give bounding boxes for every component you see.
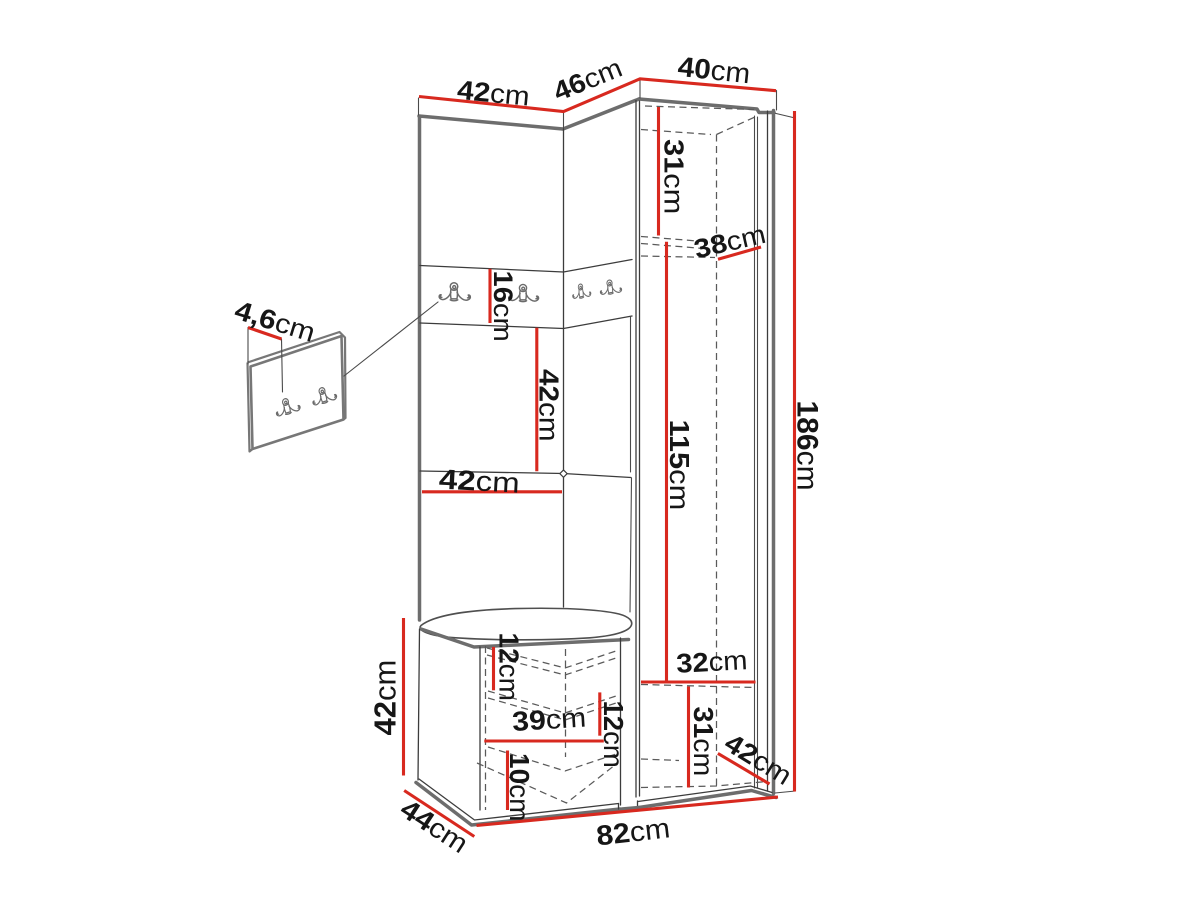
svg-text:16cm: 16cm (488, 271, 518, 342)
svg-text:12cm: 12cm (494, 633, 525, 701)
svg-text:42cm: 42cm (533, 369, 564, 442)
svg-text:10cm: 10cm (504, 753, 535, 821)
svg-text:12cm: 12cm (598, 701, 629, 768)
svg-text:115cm: 115cm (663, 420, 694, 511)
svg-text:186cm: 186cm (791, 401, 824, 491)
svg-text:31cm: 31cm (658, 139, 689, 214)
svg-text:42cm: 42cm (438, 464, 520, 499)
svg-text:31cm: 31cm (688, 707, 720, 777)
svg-text:39cm: 39cm (511, 703, 587, 738)
svg-text:32cm: 32cm (675, 645, 748, 678)
svg-text:42cm: 42cm (368, 660, 403, 736)
